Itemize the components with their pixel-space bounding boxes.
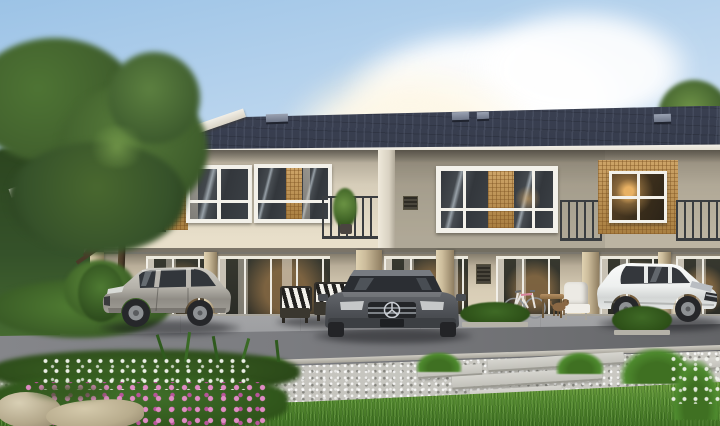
chair-leg (585, 313, 587, 320)
curtain (303, 168, 310, 219)
townhouse-rendering (0, 0, 720, 426)
window-mullion (441, 208, 553, 211)
grass-tuft (416, 352, 462, 372)
balcony-plant (333, 188, 357, 228)
window-mullion (532, 171, 535, 228)
rattan-insert (488, 171, 514, 228)
tree-canopy-highlight (86, 126, 148, 168)
chair-leg (282, 318, 285, 323)
wall-vent (476, 264, 491, 284)
dog (550, 296, 570, 318)
window-mullion (217, 169, 221, 219)
window-mullion (190, 200, 248, 203)
roof-vent (266, 114, 288, 125)
planter-curb (614, 330, 670, 335)
gray-suv (316, 266, 468, 338)
window-wood-surround (598, 160, 678, 234)
roof-vent (477, 112, 489, 121)
window (254, 164, 332, 223)
window-glass (258, 168, 286, 219)
planter-curb (462, 322, 528, 327)
window (436, 166, 558, 233)
roof-vent (452, 112, 469, 123)
wall-vent (403, 196, 418, 210)
window-mullion (258, 200, 328, 203)
window-mullion (612, 196, 664, 199)
table-leg (542, 299, 544, 318)
grass-tuft (556, 352, 604, 374)
roof-vent (654, 114, 671, 125)
silver-suv (98, 256, 236, 332)
chair-seat (280, 308, 310, 318)
white-flowers (668, 354, 720, 404)
bed-foliage (28, 382, 112, 402)
chair-leg (305, 318, 308, 323)
window (609, 171, 667, 223)
patio-chair (280, 286, 310, 322)
rattan-insert (286, 168, 302, 219)
window-mullion (463, 171, 466, 228)
